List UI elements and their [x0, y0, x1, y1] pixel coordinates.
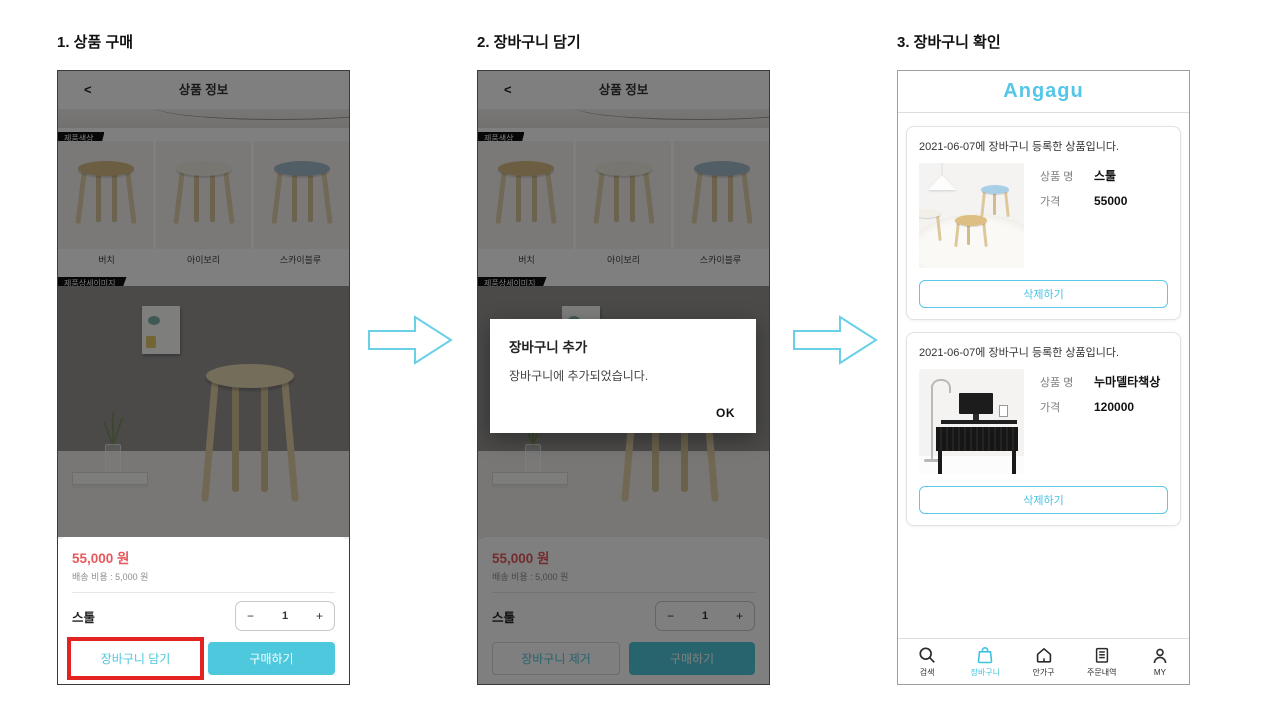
- minus-button[interactable]: −: [247, 609, 254, 623]
- shipping-cost: 배송 비용 : 5,000 원: [72, 570, 335, 583]
- product-name-label: 상품 명: [1040, 374, 1094, 390]
- flow-arrow-icon: [366, 312, 454, 368]
- quantity-stepper[interactable]: − 1 +: [235, 601, 335, 631]
- ok-button[interactable]: OK: [716, 406, 735, 420]
- bottom-nav: 검색 장바구니 안가구 주문내역: [898, 638, 1189, 684]
- cart-added-dialog: 장바구니 추가 장바구니에 추가되었습니다. OK: [490, 319, 756, 433]
- product-name-value: 스툴: [1094, 167, 1116, 184]
- flow-arrow-icon: [791, 312, 879, 368]
- step-3-title: 3. 장바구니 확인: [897, 31, 1001, 52]
- nav-my[interactable]: MY: [1131, 639, 1189, 684]
- step-2-title: 2. 장바구니 담기: [477, 31, 581, 52]
- step-1-title: 1. 상품 구매: [57, 31, 133, 52]
- price-value: 120000: [1094, 400, 1134, 414]
- dialog-title: 장바구니 추가: [509, 336, 737, 356]
- home-icon: [1034, 645, 1054, 665]
- product-price: 55,000 원: [72, 547, 335, 567]
- product-name-label: 상품 명: [1040, 168, 1094, 184]
- screen-cart: Angagu 2021-06-07에 장바구니 등록한 상품입니다. 상품 명: [897, 70, 1190, 685]
- nav-cart[interactable]: 장바구니: [956, 639, 1014, 684]
- orders-icon: [1092, 645, 1112, 665]
- dialog-message: 장바구니에 추가되었습니다.: [509, 367, 737, 384]
- product-image-desk: [919, 369, 1024, 474]
- price-value: 55000: [1094, 194, 1127, 208]
- price-label: 가격: [1040, 399, 1094, 415]
- delete-button[interactable]: 삭제하기: [919, 486, 1168, 514]
- cart-item-card: 2021-06-07에 장바구니 등록한 상품입니다. 상품 명: [906, 332, 1181, 526]
- cart-item-date: 2021-06-07에 장바구니 등록한 상품입니다.: [919, 138, 1168, 154]
- bag-icon: [975, 645, 995, 665]
- buy-button[interactable]: 구매하기: [208, 642, 335, 675]
- app-bar: Angagu: [898, 71, 1189, 113]
- cart-item-card: 2021-06-07에 장바구니 등록한 상품입니다. 상품 명 스툴: [906, 126, 1181, 320]
- purchase-bottom-sheet: 55,000 원 배송 비용 : 5,000 원 스툴 − 1 + 장바구니 담…: [58, 537, 349, 684]
- product-image-stool: [919, 163, 1024, 268]
- nav-home[interactable]: 안가구: [1014, 639, 1072, 684]
- nav-orders[interactable]: 주문내역: [1073, 639, 1131, 684]
- pendant-lamp: [941, 163, 943, 177]
- price-label: 가격: [1040, 193, 1094, 209]
- product-name-value: 누마델타책상: [1094, 373, 1160, 390]
- dim-overlay: [58, 71, 349, 537]
- add-to-cart-button[interactable]: 장바구니 담기: [72, 642, 199, 675]
- plus-button[interactable]: +: [316, 609, 323, 623]
- screen-product-purchase: < 상품 정보 제품색상 버치 아이보리 스카이블루 제품상세이미지: [57, 70, 350, 685]
- nav-search[interactable]: 검색: [898, 639, 956, 684]
- cart-item-date: 2021-06-07에 장바구니 등록한 상품입니다.: [919, 344, 1168, 360]
- floor-lamp: [931, 385, 933, 461]
- product-name: 스툴: [72, 607, 95, 626]
- screen-add-to-cart: < 상품 정보 제품색상 버치 아이보리 스카이블루 제품상세이미지: [477, 70, 770, 685]
- monitor: [959, 393, 993, 414]
- cart-list: 2021-06-07에 장바구니 등록한 상품입니다. 상품 명 스툴: [898, 113, 1189, 544]
- search-icon: [917, 645, 937, 665]
- person-icon: [1150, 646, 1170, 666]
- app-logo: Angagu: [1003, 80, 1083, 103]
- quantity-value: 1: [282, 610, 288, 622]
- delete-button[interactable]: 삭제하기: [919, 280, 1168, 308]
- flow-diagram: 1. 상품 구매 2. 장바구니 담기 3. 장바구니 확인 < 상품 정보 제…: [0, 0, 1280, 720]
- divider: [72, 592, 335, 593]
